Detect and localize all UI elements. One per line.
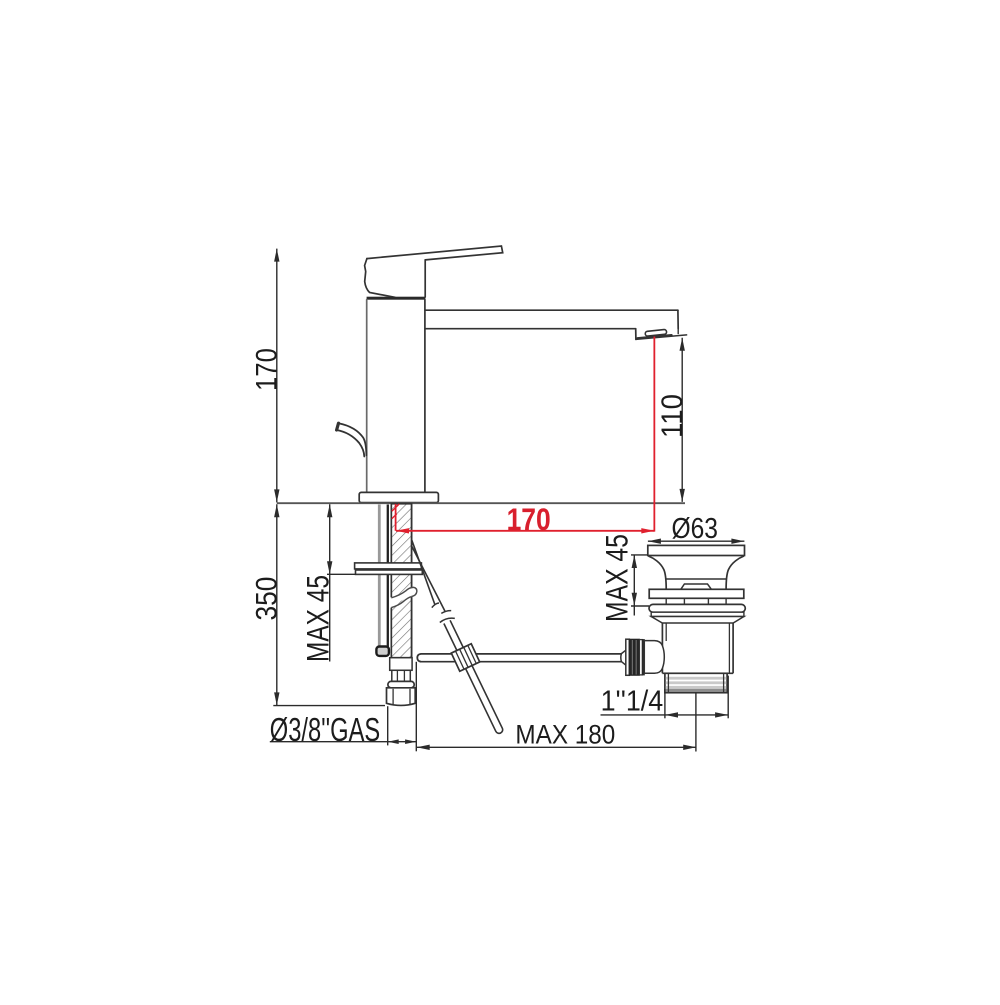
svg-text:110: 110 xyxy=(656,394,689,438)
svg-text:170: 170 xyxy=(250,348,283,391)
svg-text:MAX 45: MAX 45 xyxy=(299,575,335,662)
svg-text:350: 350 xyxy=(249,577,283,621)
svg-text:MAX 180: MAX 180 xyxy=(515,720,615,749)
svg-text:Ø3/8''GAS: Ø3/8''GAS xyxy=(270,712,380,749)
svg-text:1''1/4: 1''1/4 xyxy=(601,685,664,717)
svg-text:170: 170 xyxy=(507,503,551,538)
svg-text:MAX 45: MAX 45 xyxy=(599,534,635,622)
svg-text:Ø63: Ø63 xyxy=(672,512,718,544)
